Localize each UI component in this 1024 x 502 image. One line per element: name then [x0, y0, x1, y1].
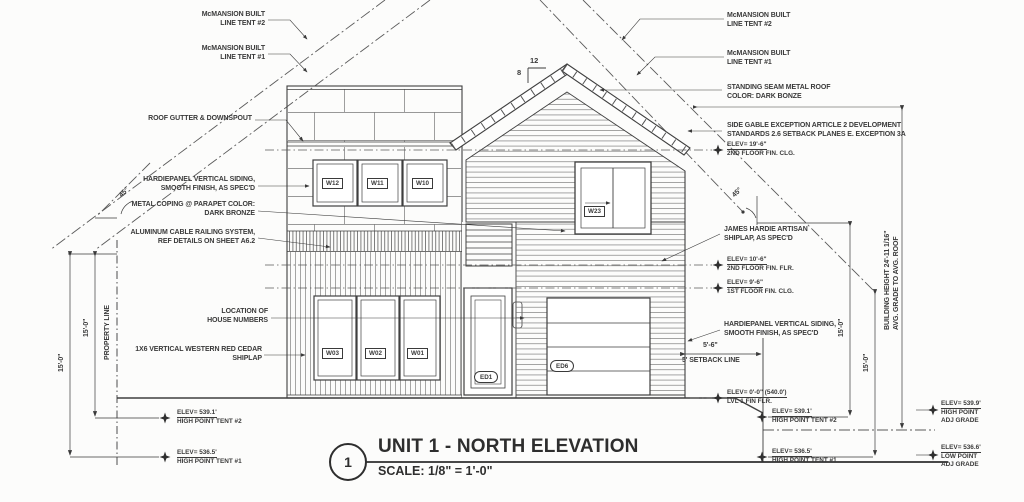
elev-high-point-tent1-left: ELEV= 536.5'HIGH POINT TENT #1 — [177, 449, 242, 466]
elevation-sheet: McMANSION BUILTLINE TENT #2 McMANSION BU… — [0, 0, 1024, 502]
property-line-label: PROPERTY LINE — [104, 305, 113, 360]
note-hardiepanel-left: HARDIEPANEL VERTICAL SIDING,SMOOTH FINIS… — [115, 176, 255, 193]
note-side-gable-exception: SIDE GABLE EXCEPTION ARTICLE 2 DEVELOPME… — [727, 122, 906, 139]
cable-railing-band — [288, 231, 461, 251]
lower-windows — [314, 296, 440, 380]
window-w23 — [575, 162, 651, 234]
elev-high-point-adj-grade: ELEV= 539.9'HIGH POINTADJ GRADE — [941, 400, 981, 424]
tag-window-w02: W02 — [365, 348, 386, 359]
elev-1st-floor-clg: ELEV= 9'-6"1ST FLOOR FIN. CLG. — [727, 279, 794, 296]
dim-15ft-left-outer: 15'-0" — [58, 354, 67, 372]
dim-15ft-left-inner: 15'-0" — [83, 319, 92, 337]
elev-high-point-tent2-right: ELEV= 539.1'HIGH POINT TENT #2 — [772, 408, 837, 425]
roof-pitch-run: 12 — [530, 56, 538, 65]
elev-2nd-floor-flr: ELEV= 10'-6"2ND FLOOR FIN. FLR. — [727, 256, 794, 273]
elev-2nd-floor-clg: ELEV= 19'-6"2ND FLOOR FIN. CLG. — [727, 141, 795, 158]
note-metal-coping: METAL COPING @ PARAPET COLOR:DARK BRONZE — [115, 201, 255, 218]
note-roof-gutter: ROOF GUTTER & DOWNSPOUT — [100, 115, 252, 124]
tag-door-ed6: ED6 — [550, 360, 574, 372]
note-hardiepanel-right: HARDIEPANEL VERTICAL SIDING,SMOOTH FINIS… — [724, 321, 836, 338]
dim-15ft-right-inner: 15'-0" — [838, 319, 847, 337]
note-mcmansion-tent-1-right: McMANSION BUILTLINE TENT #1 — [727, 50, 790, 67]
roof-pitch-rise: 8 — [517, 68, 521, 77]
tag-door-ed1: ED1 — [474, 371, 498, 383]
elev-high-point-tent2-left: ELEV= 539.1'HIGH POINT TENT #2 — [177, 409, 242, 426]
note-james-hardie: JAMES HARDIE ARTISANSHIPLAP, AS SPEC'D — [724, 226, 808, 243]
dim-15ft-right-outer: 15'-0" — [863, 354, 872, 372]
note-standing-seam-roof: STANDING SEAM METAL ROOFCOLOR: DARK BONZ… — [727, 84, 830, 101]
tag-window-w23: W23 — [584, 206, 605, 217]
note-house-numbers: LOCATION OFHOUSE NUMBERS — [168, 308, 268, 325]
note-cable-railing: ALUMINUM CABLE RAILING SYSTEM,REF DETAIL… — [115, 229, 255, 246]
garage-door — [547, 298, 650, 395]
elev-lvl1-fin-flr: ELEV= 0'-0" (540.0')LVL 1 FIN FLR. — [727, 389, 787, 406]
detail-number: 1 — [330, 444, 366, 480]
drawing-scale: SCALE: 1/8" = 1'-0" — [378, 464, 493, 478]
tag-window-w03: W03 — [322, 348, 343, 359]
tag-window-w01: W01 — [407, 348, 428, 359]
elev-high-point-tent1-right: ELEV= 536.5'HIGH POINT TENT #1 — [772, 448, 837, 465]
drawing-title: UNIT 1 - NORTH ELEVATION — [378, 436, 639, 458]
note-mcmansion-tent-2-right: McMANSION BUILTLINE TENT #2 — [727, 12, 790, 29]
elevation-linework — [0, 0, 1024, 502]
tag-window-w11: W11 — [367, 178, 388, 189]
note-cedar-shiplap: 1X6 VERTICAL WESTERN RED CEDARSHIPLAP — [112, 346, 262, 363]
setback-line-label: 5' SETBACK LINE — [682, 357, 740, 366]
tag-window-w10: W10 — [412, 178, 433, 189]
parapet-panel-siding — [288, 89, 461, 142]
note-mcmansion-tent-1-left: McMANSION BUILTLINE TENT #1 — [139, 45, 265, 62]
building-height-label: BUILDING HEIGHT 24'-11 1/16"AVG. GRADE T… — [884, 231, 901, 330]
tag-window-w12: W12 — [322, 178, 343, 189]
note-mcmansion-tent-2-left: McMANSION BUILTLINE TENT #2 — [139, 11, 265, 28]
elev-low-point-adj-grade: ELEV= 536.6'LOW POINTADJ GRADE — [941, 444, 981, 468]
dim-5ft6: 5'-6" — [703, 342, 718, 351]
